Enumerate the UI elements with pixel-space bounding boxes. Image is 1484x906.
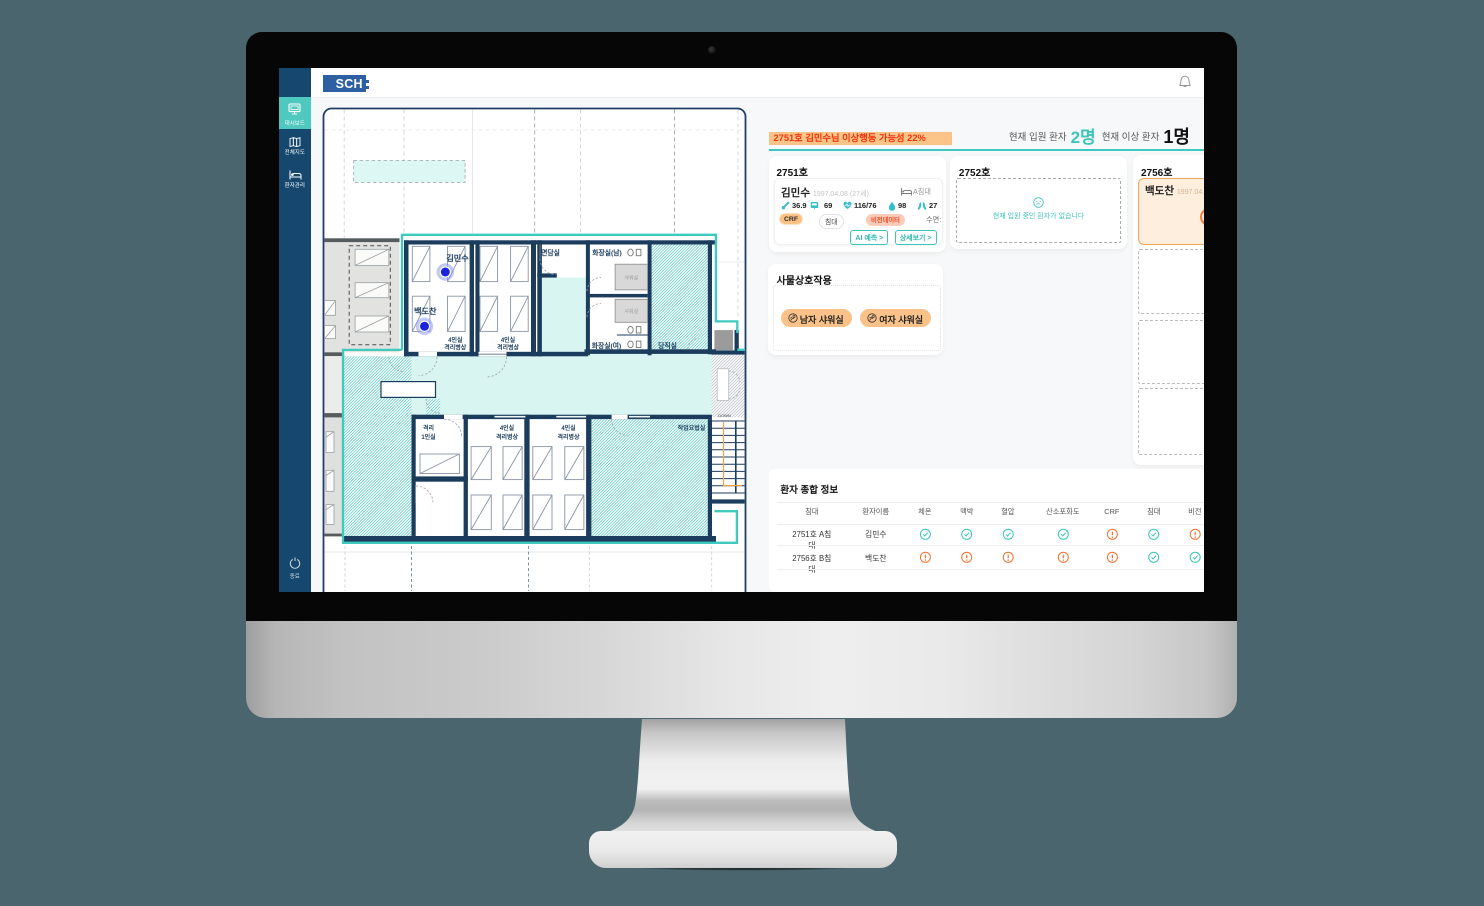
svg-text:DOWN: DOWN [718,413,731,418]
svg-text:김민수: 김민수 [446,253,469,263]
svg-text:4인실: 4인실 [501,336,516,344]
svg-text:4인실: 4인실 [448,336,463,344]
svg-text:작업요법실: 작업요법실 [678,424,706,432]
svg-text:격리병상: 격리병상 [496,433,519,441]
svg-text:1인실: 1인실 [421,433,436,441]
svg-text:백도찬: 백도찬 [414,306,437,316]
svg-text:격리병상: 격리병상 [497,343,520,351]
svg-text:격리: 격리 [423,424,434,432]
svg-text:화장실(여): 화장실(여) [592,341,621,350]
svg-text:4인실: 4인실 [561,424,576,432]
svg-text:당직실: 당직실 [658,341,677,350]
svg-text:샤워실: 샤워실 [624,308,638,315]
svg-text:격리병상: 격리병상 [557,433,580,441]
svg-text:4인실: 4인실 [500,424,515,432]
svg-text:샤워실: 샤워실 [624,274,638,281]
svg-text:화장실(남): 화장실(남) [592,248,621,257]
svg-text:면담실: 면담실 [541,248,560,257]
svg-text:격리병상: 격리병상 [444,343,467,351]
